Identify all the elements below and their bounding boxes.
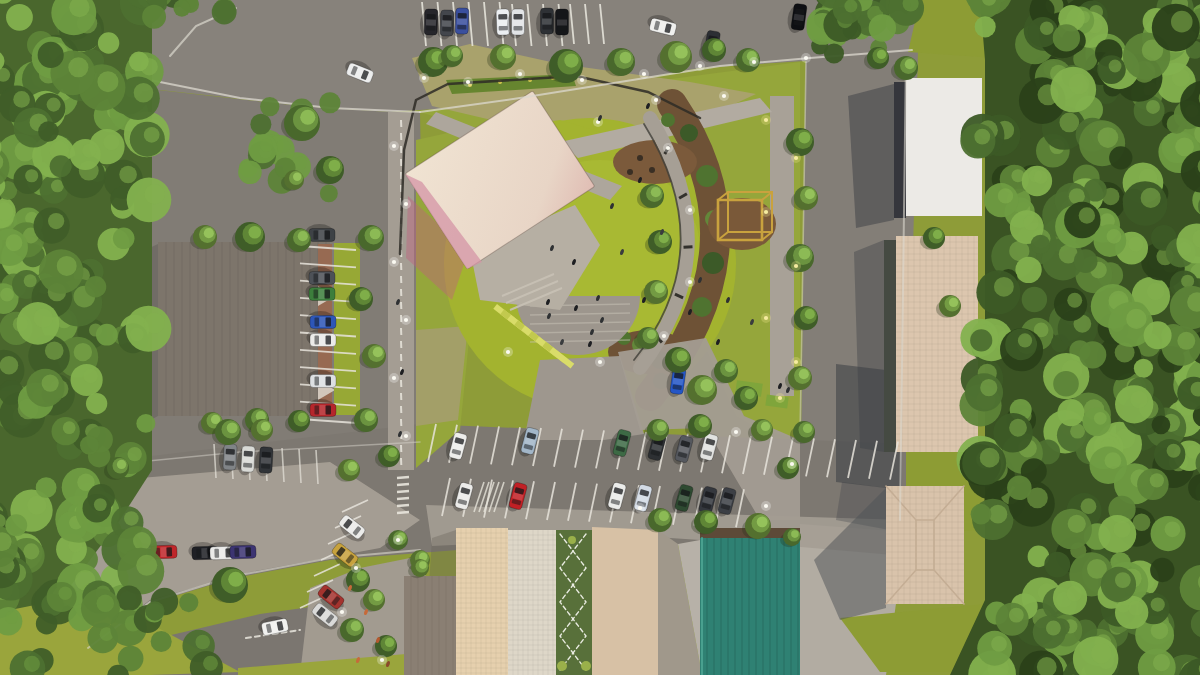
forest-west	[0, 0, 171, 625]
left-mixed-use-building	[158, 242, 330, 416]
street-light	[389, 373, 399, 383]
teal-metal-roof-building	[700, 536, 800, 675]
shop-a-right-roof	[508, 530, 556, 675]
street-light	[663, 143, 673, 153]
street-light	[761, 115, 771, 125]
street-light	[775, 393, 785, 403]
street-light	[577, 75, 587, 85]
site-plan-svg	[0, 0, 1200, 675]
street-light	[635, 503, 645, 513]
street-light	[389, 257, 399, 267]
aerial-site-plan-rendering	[0, 0, 1200, 675]
street-light	[719, 91, 729, 101]
street-light	[791, 261, 801, 271]
street-light	[463, 77, 473, 87]
street-light	[377, 655, 387, 665]
street-light	[639, 69, 649, 79]
street-light	[401, 315, 411, 325]
street-light	[761, 313, 771, 323]
street-light	[659, 331, 669, 341]
street-light	[761, 207, 771, 217]
bench	[683, 245, 692, 248]
shadow-white-building	[848, 84, 894, 228]
left-mixed-use-building-texture	[166, 242, 326, 416]
street-light	[749, 57, 759, 67]
street-light	[761, 501, 771, 511]
street-light	[791, 153, 801, 163]
street-light	[801, 53, 811, 63]
shop-small-gray	[404, 576, 458, 675]
street-light	[393, 535, 403, 545]
street-light	[787, 459, 797, 469]
street-light	[731, 427, 741, 437]
shop-b-roof	[592, 527, 658, 675]
street-light	[419, 73, 429, 83]
street-light	[401, 431, 411, 441]
street-light	[503, 347, 513, 357]
street-light	[791, 357, 801, 367]
street-light	[337, 607, 347, 617]
scene-root	[0, 0, 1200, 675]
street-light	[515, 69, 525, 79]
street-light	[695, 61, 705, 71]
street-light	[595, 357, 605, 367]
street-light	[685, 205, 695, 215]
left-building-lawn-strip	[334, 243, 360, 415]
street-light	[651, 95, 661, 105]
street-light	[351, 563, 361, 573]
street-light	[685, 277, 695, 287]
east-apartment-facade	[884, 240, 896, 452]
street-light	[401, 199, 411, 209]
street-light	[389, 141, 399, 151]
